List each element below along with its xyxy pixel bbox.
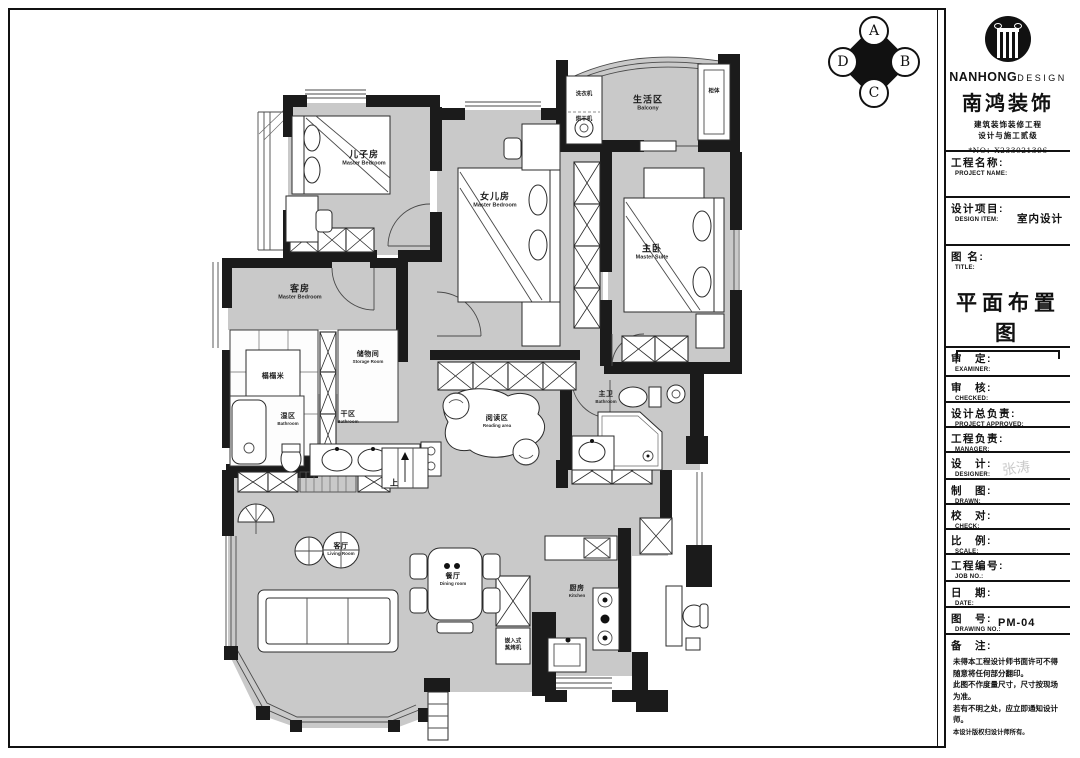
chair-daughter bbox=[504, 138, 521, 159]
bed-daughter bbox=[458, 168, 560, 302]
field-drawing-no: 图 号: DRAWING NO.: PM-04 bbox=[946, 608, 1070, 635]
orientation-compass: A B C D bbox=[826, 14, 922, 110]
bench-daughter bbox=[522, 302, 560, 346]
drawing-no-value: PM-04 bbox=[998, 617, 1035, 629]
field-remarks: 备 注: 未得本工程设计师书面许可不得随意将任何部分翻印。 此图不作度量尺寸，尺… bbox=[946, 635, 1070, 748]
compass-letter-b: B bbox=[890, 47, 920, 77]
field-project-approved: 设计总负责: PROJECT APPROVED: bbox=[946, 403, 1070, 428]
steam-oven-cabinet bbox=[496, 628, 530, 664]
brand-name-cn: 南鸿装饰 bbox=[962, 87, 1054, 116]
field-scale: 比 例: SCALE: bbox=[946, 530, 1070, 555]
field-checked: 审 核: CHECKED: bbox=[946, 377, 1070, 403]
toilet-master bbox=[619, 387, 647, 407]
brand-certification: 建筑装饰装修工程 设计与施工贰级 bbox=[974, 120, 1042, 142]
washing-machine bbox=[575, 119, 593, 137]
bed-son bbox=[292, 116, 390, 194]
bed-master bbox=[624, 198, 724, 312]
field-manager: 工程负责: MANAGER: bbox=[946, 428, 1070, 453]
sofa bbox=[258, 590, 398, 652]
water-heater bbox=[667, 385, 685, 403]
field-project-name: 工程名称: PROJECT NAME: bbox=[946, 152, 1070, 198]
field-examiner: 审 定: EXAMINER: bbox=[946, 348, 1070, 377]
chair-son bbox=[316, 210, 332, 232]
field-date: 日 期: DATE: bbox=[946, 582, 1070, 608]
compass-letter-c: C bbox=[859, 78, 889, 108]
desk-daughter bbox=[522, 124, 560, 170]
brand-name-en: NANHONGDESIGN bbox=[949, 68, 1067, 86]
designer-signature: 张涛 bbox=[1001, 456, 1032, 480]
field-designer: 设 计: DESIGNER: 张涛 bbox=[946, 453, 1070, 480]
design-item-value: 室内设计 bbox=[1017, 211, 1063, 226]
desk-son bbox=[286, 196, 318, 242]
title-block: NANHONGDESIGN 南鸿装饰 建筑装饰装修工程 设计与施工贰级 *NO：… bbox=[944, 8, 1070, 748]
compass-letter-d: D bbox=[828, 47, 858, 77]
storage-room bbox=[338, 330, 398, 422]
brand-block: NANHONGDESIGN 南鸿装饰 建筑装饰装修工程 设计与施工贰级 *NO：… bbox=[946, 8, 1070, 152]
field-job-no: 工程编号: JOB NO.: bbox=[946, 555, 1070, 582]
floor-plan-drawing bbox=[0, 0, 940, 758]
remark-line: 若有不明之处，应立即通知设计师。 bbox=[953, 703, 1065, 726]
sink-left bbox=[322, 449, 352, 471]
remark-line: 本设计版权归设计师所有。 bbox=[953, 728, 1065, 738]
balcony-cabinet bbox=[698, 64, 730, 140]
field-design-item: 设计项目: DESIGN ITEM: 室内设计 bbox=[946, 198, 1070, 246]
drawing-title-value: 平面布置图 bbox=[951, 287, 1065, 347]
outside-desk bbox=[666, 586, 708, 650]
remark-line: 此图不作度量尺寸，尺寸按现场为准。 bbox=[953, 679, 1065, 702]
drawing-sheet: { "titleblock": { "brand": { "name_en_bo… bbox=[0, 0, 1080, 758]
desk-master bbox=[644, 168, 704, 198]
field-drawn: 制 图: DRAWN: bbox=[946, 480, 1070, 505]
bathtub bbox=[232, 400, 266, 464]
field-drawing-title: 图 名: TITLE: 平面布置图 bbox=[946, 246, 1070, 348]
field-check: 校 对: CHECK: bbox=[946, 505, 1070, 530]
remark-line: 未得本工程设计师书面许可不得随意将任何部分翻印。 bbox=[953, 656, 1065, 679]
company-logo-icon bbox=[985, 16, 1031, 62]
compass-letter-a: A bbox=[859, 16, 889, 46]
nightstand-master bbox=[696, 314, 724, 348]
